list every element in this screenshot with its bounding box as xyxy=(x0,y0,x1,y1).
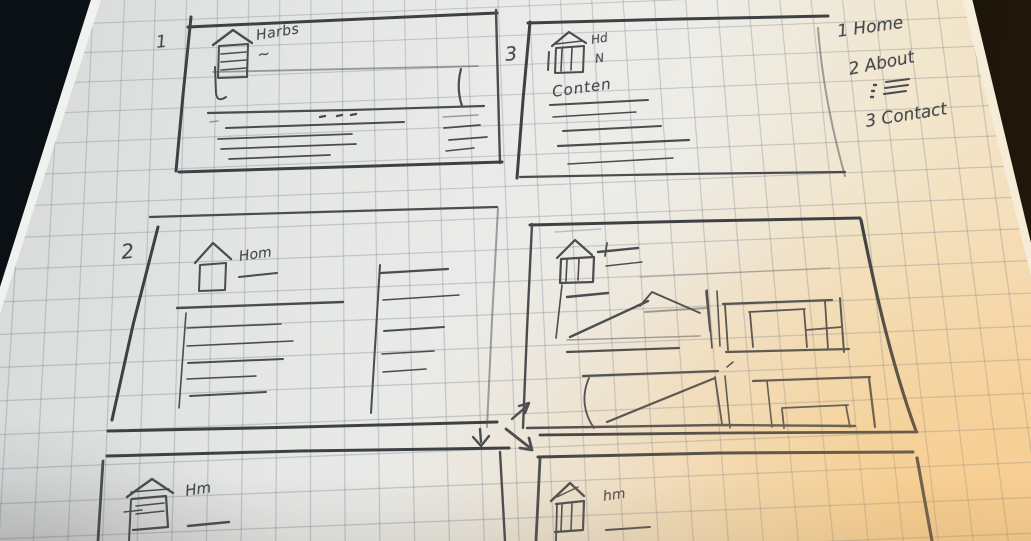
article-text-placeholders xyxy=(177,302,343,408)
photo-of-wireframe-sketches: 1 Harbs ~ 3 Hd N Conten 2 Hom 1 Home 2 A… xyxy=(0,0,1031,541)
sketch-number-label: 3 xyxy=(504,43,518,66)
wireframe-gallery-page xyxy=(523,218,917,435)
arrow-down-icon xyxy=(473,429,489,446)
sidebar-placeholders xyxy=(371,265,459,413)
image-placeholder-frame xyxy=(723,298,849,352)
image-placeholder-frame xyxy=(753,377,875,428)
house-icon xyxy=(557,240,594,283)
sketch-number-label: 2 xyxy=(120,239,135,264)
house-icon xyxy=(548,32,586,73)
carousel-dots-icon xyxy=(320,114,356,117)
logo-mark: ~ xyxy=(256,44,271,64)
logo-text: Hm xyxy=(184,478,212,499)
logo-underline xyxy=(188,522,229,526)
house-icon xyxy=(124,479,173,541)
wireframe-home-hero xyxy=(176,10,502,172)
text-line-placeholders xyxy=(553,112,689,164)
arrow-up-right-icon xyxy=(512,403,529,419)
hero-banner-placeholder xyxy=(208,66,484,117)
logo-text: Hd xyxy=(590,30,609,46)
logo-underline xyxy=(239,273,277,277)
wireframe-bottom-right xyxy=(536,452,932,541)
logo-text: hm xyxy=(602,486,627,505)
house-icon xyxy=(195,243,231,291)
logo-underline xyxy=(606,527,650,530)
nav-note-number: 3 xyxy=(864,110,878,131)
text-line-placeholders xyxy=(210,115,487,159)
menu-list-icon xyxy=(871,79,909,97)
house-icon xyxy=(551,483,584,541)
nav-note-number: 1 xyxy=(836,20,850,41)
image-placeholder-photo xyxy=(583,371,722,428)
heading-underline xyxy=(550,100,648,105)
image-placeholder-photo xyxy=(567,291,710,352)
sketch-number-label: 1 xyxy=(155,32,168,53)
pencil-sketch-layer xyxy=(0,0,1031,541)
graph-paper-sheet: 1 Harbs ~ 3 Hd N Conten 2 Hom 1 Home 2 A… xyxy=(0,0,1031,541)
logo-mark: N xyxy=(594,51,605,66)
wireframe-bottom-left xyxy=(98,448,509,541)
wireframe-article-page xyxy=(108,207,498,431)
